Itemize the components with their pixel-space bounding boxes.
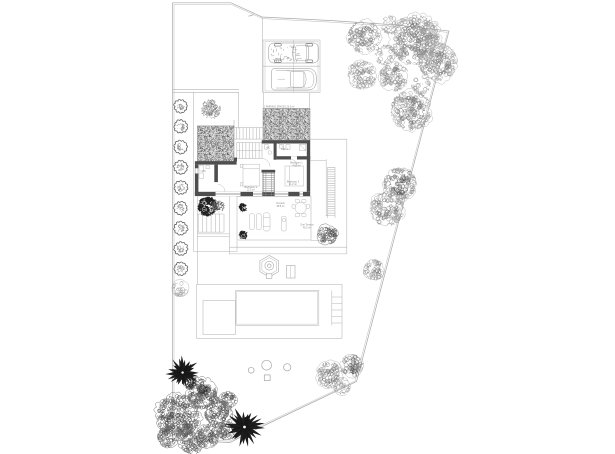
svg-text:WC: WC (202, 171, 206, 173)
svg-text:12.5 m²: 12.5 m² (247, 189, 255, 192)
svg-text:38.8 m²: 38.8 m² (276, 205, 284, 208)
svg-text:4.50 m²: 4.50 m² (292, 164, 300, 167)
svg-text:WC: WC (266, 147, 270, 149)
svg-text:45.5 m²: 45.5 m² (303, 227, 311, 230)
svg-text:11.2 m²: 11.2 m² (289, 183, 297, 186)
svg-text:2 PARKING SPACES 25.0 m²: 2 PARKING SPACES 25.0 m² (264, 105, 295, 108)
svg-text:Bath 1: Bath 1 (281, 148, 288, 151)
